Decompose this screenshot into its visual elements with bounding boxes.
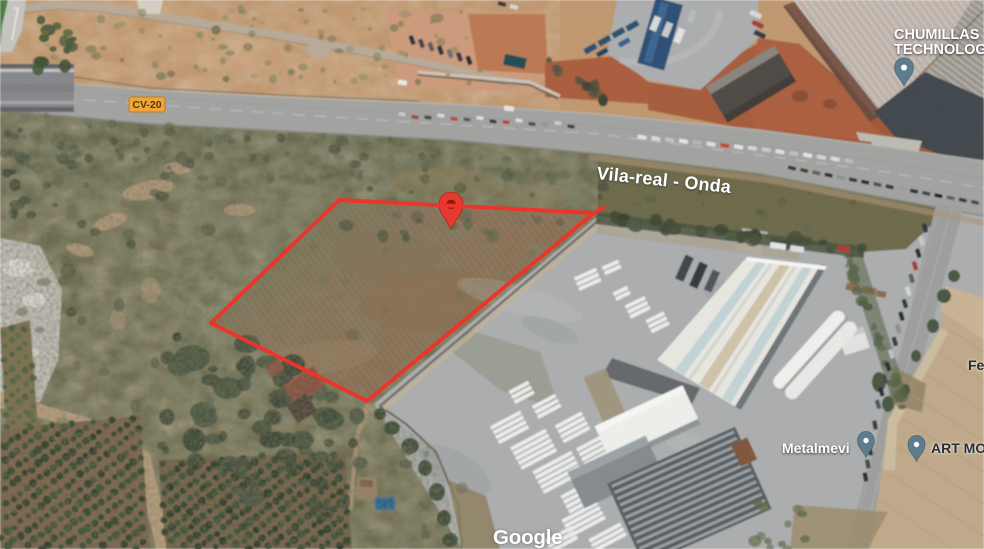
- svg-text:TECHNOLOGY: TECHNOLOGY: [894, 42, 984, 58]
- svg-text:CHUMILLAS: CHUMILLAS: [894, 27, 980, 43]
- svg-text:Google: Google: [493, 526, 562, 549]
- svg-text:Fe: Fe: [968, 357, 984, 373]
- svg-text:ART MO: ART MO: [931, 440, 984, 456]
- svg-text:CV-20: CV-20: [132, 99, 161, 111]
- svg-text:Metalmevi: Metalmevi: [782, 440, 850, 456]
